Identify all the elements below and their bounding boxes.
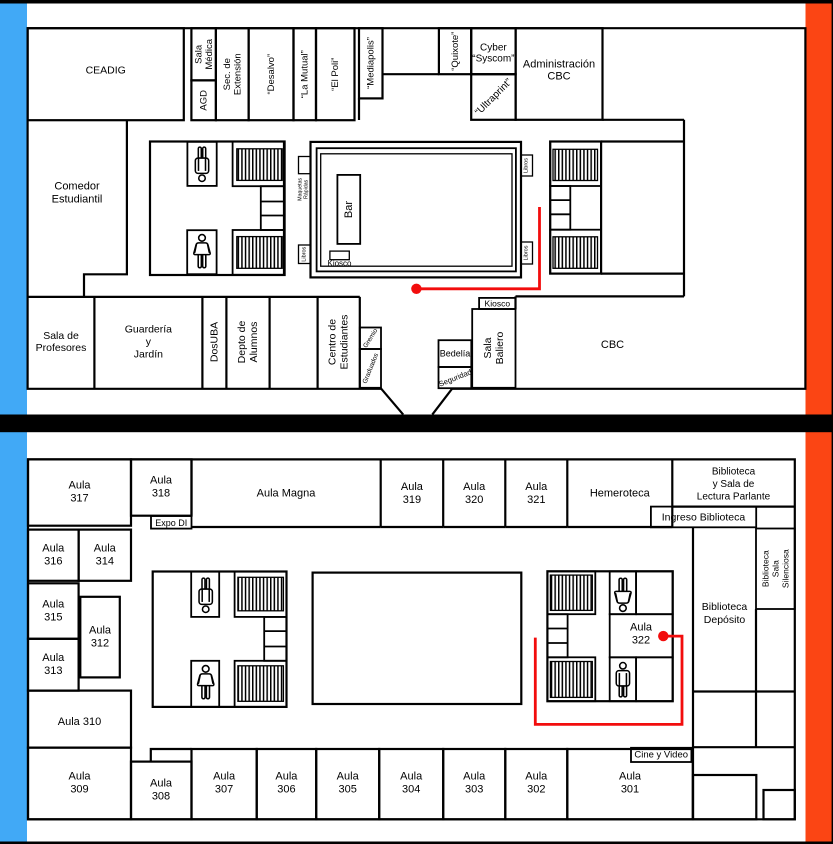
svg-text:CBC: CBC [601,339,624,351]
svg-text:“Desalvo”: “Desalvo” [266,54,277,95]
svg-text:“Mediapolis”: “Mediapolis” [365,37,376,89]
svg-text:Aula315: Aula315 [42,599,65,624]
svg-text:Centro deEstudiantes: Centro deEstudiantes [327,315,351,370]
svg-text:Aula313: Aula313 [42,652,65,677]
svg-text:AGD: AGD [198,90,209,111]
svg-text:Aula318: Aula318 [150,475,173,500]
svg-text:Hemeroteca: Hemeroteca [590,488,651,500]
svg-text:Depto deAlumnos: Depto deAlumnos [236,321,260,364]
svg-text:“Quixote”: “Quixote” [450,32,461,71]
svg-text:Aula305: Aula305 [337,771,360,796]
svg-text:Bar: Bar [343,201,355,218]
svg-text:“La Mutual”: “La Mutual” [299,50,310,98]
svg-text:Aula302: Aula302 [525,771,548,796]
svg-text:Aula Magna: Aula Magna [257,488,317,500]
svg-text:Expo DI: Expo DI [155,518,187,528]
svg-text:BibliotecaDepósito: BibliotecaDepósito [702,601,748,626]
svg-text:Sec. deExtensión: Sec. deExtensión [222,53,244,95]
svg-text:MaquetasRápidas: MaquetasRápidas [298,178,310,201]
svg-text:Aula304: Aula304 [400,771,423,796]
svg-text:Aula 310: Aula 310 [58,716,101,728]
svg-text:Aula301: Aula301 [619,771,642,796]
svg-text:Aula308: Aula308 [150,778,173,803]
svg-text:Kiosco: Kiosco [327,259,352,268]
svg-text:Aula303: Aula303 [463,771,486,796]
svg-text:Sala deProfesores: Sala deProfesores [36,330,87,354]
svg-text:Aula312: Aula312 [89,625,112,650]
svg-text:Aula317: Aula317 [68,480,91,505]
svg-text:DosUBA: DosUBA [208,322,220,362]
svg-text:Aula314: Aula314 [94,543,117,568]
svg-text:Kiosco: Kiosco [485,299,511,309]
svg-text:Cine y Video: Cine y Video [634,750,688,761]
svg-text:Libros: Libros [524,158,530,173]
svg-text:Ingreso Biblioteca: Ingreso Biblioteca [662,511,746,523]
svg-text:Aula307: Aula307 [213,771,236,796]
svg-text:Libros: Libros [524,245,530,260]
svg-text:Aula319: Aula319 [401,481,424,506]
svg-text:ComedorEstudiantil: ComedorEstudiantil [52,181,103,206]
svg-text:Aula309: Aula309 [68,771,91,796]
svg-text:Libros: Libros [302,246,308,261]
svg-text:CEADIG: CEADIG [86,65,126,77]
svg-text:Bedelía: Bedelía [440,349,471,359]
svg-text:Aula322: Aula322 [630,622,653,647]
svg-text:“El Poli”: “El Poli” [330,58,341,91]
svg-text:Aula320: Aula320 [463,481,486,506]
svg-text:Aula316: Aula316 [42,543,65,568]
svg-text:Aula306: Aula306 [275,771,298,796]
svg-text:Aula321: Aula321 [525,481,548,506]
